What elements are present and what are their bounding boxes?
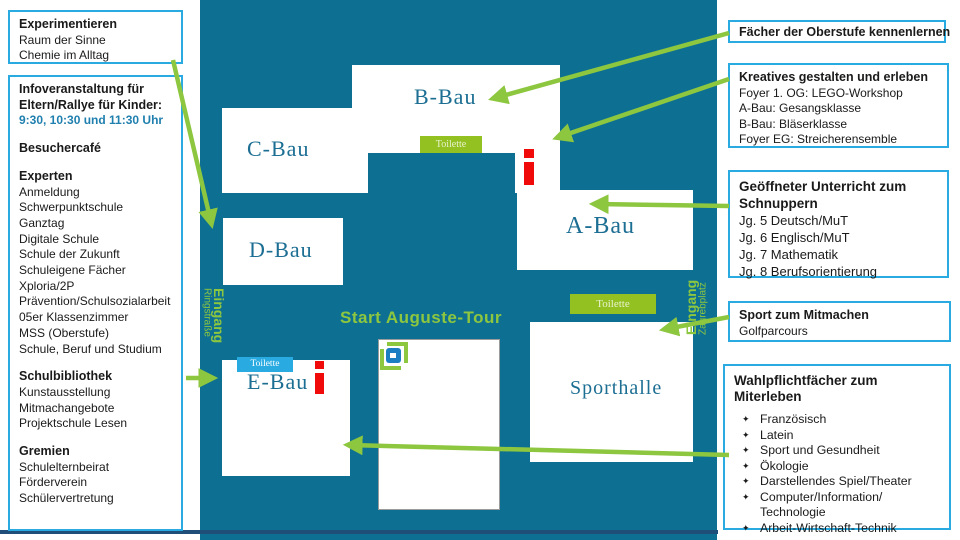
entrance-street: Zagrebplatz [699, 255, 710, 335]
tour-start-area [378, 339, 500, 510]
experts-title: Experten [19, 169, 172, 185]
label-c-bau: C-Bau [247, 136, 309, 162]
list-item: Projektschule Lesen [19, 416, 172, 432]
logo-core-icon [390, 353, 396, 358]
entrance-title: Eingang [684, 255, 699, 335]
info-box-oberstufe: Fächer der Oberstufe kennenlernen [728, 20, 946, 43]
list-item: ✦Darstellendes Spiel/Theater [734, 474, 940, 490]
list-item: Raum der Sinne [19, 33, 172, 49]
list-item: Jg. 6 Englisch/MuT [739, 229, 938, 246]
list-item: ✦Französisch [734, 412, 940, 428]
list-item: B-Bau: Bläserklasse [739, 117, 938, 133]
list-item: Xploria/2P [19, 279, 172, 295]
label-e-bau: E-Bau [247, 369, 308, 395]
list-item: ✦Sport und Gesundheit [734, 443, 940, 459]
diamond-bullet-icon: ✦ [742, 474, 750, 490]
list-item: Schule, Beruf und Studium [19, 342, 172, 358]
list-item: Mitmachangebote [19, 401, 172, 417]
list-item: Prävention/Schulsozialarbeit [19, 294, 172, 310]
info-box-unterricht: Geöffneter Unterricht zum Schnuppern Jg.… [728, 170, 949, 278]
entrance-ringstrasse: Eingang Ringstraße [201, 288, 226, 354]
diamond-bullet-icon: ✦ [742, 459, 750, 475]
committees-title: Gremien [19, 444, 172, 460]
list-item: Foyer 1. OG: LEGO-Workshop [739, 86, 938, 102]
info-i-icon [524, 162, 534, 185]
toilette-badge-sporthalle: Toilette [570, 294, 656, 314]
info-box-program: Infoveranstaltung für Eltern/Rallye für … [8, 75, 183, 531]
list-item: Förderverein [19, 475, 172, 491]
toilette-badge-e-bau: Toilette [237, 357, 293, 372]
list-item: A-Bau: Gesangsklasse [739, 101, 938, 117]
diamond-bullet-icon: ✦ [742, 428, 750, 444]
school-logo-icon [380, 342, 408, 370]
library-title: Schulbibliothek [19, 369, 172, 385]
info-i-icon [315, 361, 324, 369]
info-i-icon [315, 373, 324, 394]
list-item: Schwerpunktschule [19, 200, 172, 216]
info-box-sport: Sport zum Mitmachen Golfparcours [728, 301, 951, 342]
list-item: ✦Computer/Information/ Technologie [734, 490, 940, 521]
list-item: Ganztag [19, 216, 172, 232]
tour-start-label: Start Auguste-Tour [340, 308, 502, 328]
list-item: Digitale Schule [19, 232, 172, 248]
label-a-bau: A-Bau [566, 213, 635, 240]
cafe-title: Besuchercafé [19, 141, 172, 157]
entrance-zagrebplatz: Eingang Zagrebplatz [684, 255, 709, 335]
entrance-street: Ringstraße [201, 288, 212, 354]
list-item: 05er Klassenzimmer [19, 310, 172, 326]
list-item: Chemie im Alltag [19, 48, 172, 64]
diamond-bullet-icon: ✦ [742, 443, 750, 459]
box-title: Sport zum Mitmachen [739, 308, 940, 324]
box-title: Wahlpflichtfächer zum Miterleben [734, 373, 940, 404]
info-title: Infoveranstaltung für Eltern/Rallye für … [19, 82, 172, 113]
list-item: Schule der Zukunft [19, 247, 172, 263]
box-title: Geöffneter Unterricht zum Schnuppern [739, 178, 938, 212]
list-item: Golfparcours [739, 324, 940, 340]
list-item: Kunstausstellung [19, 385, 172, 401]
label-b-bau: B-Bau [414, 84, 476, 110]
list-item: MSS (Oberstufe) [19, 326, 172, 342]
info-i-icon [524, 149, 534, 158]
list-item: ✦Latein [734, 428, 940, 444]
wahlpflicht-list: ✦Französisch ✦Latein ✦Sport und Gesundhe… [734, 412, 940, 536]
info-box-kreatives: Kreatives gestalten und erleben Foyer 1.… [728, 63, 949, 148]
info-box-wahlpflicht: Wahlpflichtfächer zum Miterleben ✦Franzö… [723, 364, 951, 530]
box-title: Kreatives gestalten und erleben [739, 70, 938, 86]
label-d-bau: D-Bau [249, 237, 313, 263]
list-item: ✦Arbeit-Wirtschaft-Technik [734, 521, 940, 537]
courtyard-notch [368, 153, 515, 193]
list-item: Jg. 7 Mathematik [739, 246, 938, 263]
entrance-title: Eingang [212, 288, 227, 354]
list-item: Schulelternbeirat [19, 460, 172, 476]
diamond-bullet-icon: ✦ [742, 521, 750, 537]
info-times: 9:30, 10:30 und 11:30 Uhr [19, 113, 172, 129]
building-connector [515, 140, 560, 193]
label-sporthalle: Sporthalle [570, 377, 662, 400]
campus-map: B-Bau C-Bau A-Bau D-Bau E-Bau Sporthalle… [200, 0, 717, 540]
list-item: Anmeldung [19, 185, 172, 201]
diamond-bullet-icon: ✦ [742, 490, 750, 506]
list-item: Foyer EG: Streicherensemble [739, 132, 938, 148]
box-title: Fächer der Oberstufe kennenlernen [739, 25, 935, 41]
list-item: Schuleigene Fächer [19, 263, 172, 279]
list-item: Schülervertretung [19, 491, 172, 507]
diamond-bullet-icon: ✦ [742, 412, 750, 428]
list-item: Jg. 8 Berufsorientierung [739, 263, 938, 280]
list-item: Jg. 5 Deutsch/MuT [739, 212, 938, 229]
toilette-badge-b-bau: Toilette [420, 136, 482, 153]
box-title: Experimentieren [19, 17, 172, 33]
list-item: ✦Ökologie [734, 459, 940, 475]
info-box-experimentieren: Experimentieren Raum der Sinne Chemie im… [8, 10, 183, 64]
